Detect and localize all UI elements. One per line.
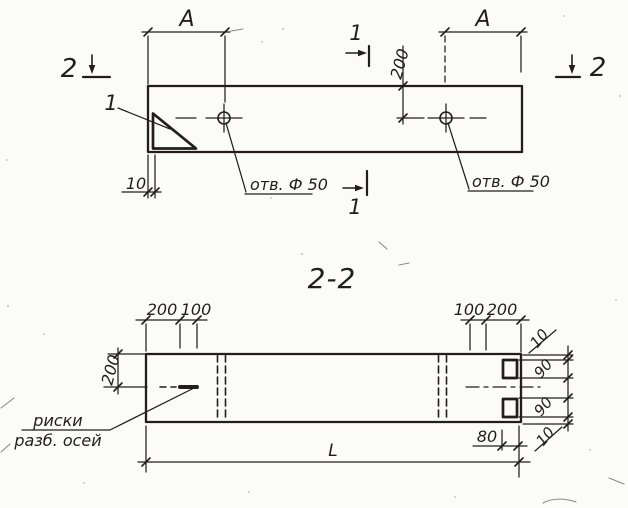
section-arrow-right-icon — [355, 185, 364, 192]
dim-top-left: 200 100 — [136, 300, 211, 351]
dim-90-bottom-label: 90 — [530, 393, 556, 419]
hidden-lines-right — [439, 355, 447, 421]
axis-note-line2: разб. осей — [13, 431, 101, 450]
dim-100-tr-label: 100 — [454, 300, 485, 319]
dim-right-chain: 10 90 90 10 — [519, 325, 573, 451]
lifting-hole-right — [408, 104, 486, 132]
hidden-lines-left — [218, 355, 226, 421]
dim-top-right: 100 200 — [454, 300, 529, 352]
dim-200-label: 200 — [387, 47, 413, 81]
section-2-right-label: 2 — [590, 53, 607, 83]
dim-10-bottom-label: 10 — [532, 423, 558, 449]
elevation-view: 1 A A — [61, 7, 607, 219]
section-mark-2-right: 2 — [556, 53, 606, 83]
section-line-1-top: 1 — [346, 21, 369, 66]
dim-100-tl-label: 100 — [181, 300, 212, 319]
dim-length-L: L — [138, 426, 530, 477]
axis-note-leader — [110, 388, 194, 430]
notch-top — [503, 360, 517, 378]
notch-bottom — [503, 399, 517, 417]
dim-200-tl-label: 200 — [147, 300, 178, 319]
beam-outline-elevation — [148, 86, 522, 152]
section-arrow-down-icon — [89, 65, 96, 74]
detail-ref-label: 1 — [104, 91, 117, 115]
dim-10-label: 10 — [126, 174, 146, 193]
dim-80-label: 80 — [477, 427, 497, 446]
section-arrow-right-icon — [358, 50, 367, 57]
dim-200-tr-label: 200 — [487, 300, 518, 319]
dim-a-left: A — [142, 7, 230, 102]
beam-outline-section — [146, 354, 521, 422]
axis-note-line1: риски — [32, 411, 82, 430]
hole-label-right: отв. Ф 50 — [472, 172, 550, 191]
dim-a-right-label: A — [473, 7, 490, 32]
section-arrow-down-icon — [569, 65, 576, 74]
dim-a-left-label: A — [177, 7, 194, 32]
section-mark-2-left: 2 — [61, 54, 110, 84]
section-1-top-label: 1 — [349, 21, 362, 45]
lifting-hole-left — [176, 104, 242, 132]
dim-10-wall: 10 — [122, 155, 161, 198]
drawing-sheet: 1 A A — [0, 0, 628, 508]
axis-note: риски разб. осей — [13, 388, 194, 450]
section-2-2-view: 2-2 риски разб. осей — [13, 262, 573, 477]
dim-10-top-label: 10 — [526, 325, 552, 351]
section-2-left-label: 2 — [61, 54, 78, 84]
hole-callout-right: отв. Ф 50 — [448, 123, 550, 191]
detail-leader-line — [118, 108, 170, 129]
corner-detail-triangle — [153, 114, 196, 149]
section-title: 2-2 — [308, 262, 357, 295]
hole-callout-left: отв. Ф 50 — [226, 123, 328, 194]
technical-drawing: 1 A A — [0, 0, 628, 508]
hole-label-left: отв. Ф 50 — [250, 175, 328, 194]
dim-length-label: L — [328, 441, 337, 461]
dim-a-right: A — [439, 7, 527, 84]
section-line-1-bottom: 1 — [343, 171, 367, 219]
dim-200-side-label: 200 — [98, 353, 124, 387]
section-1-bottom-label: 1 — [348, 195, 361, 219]
